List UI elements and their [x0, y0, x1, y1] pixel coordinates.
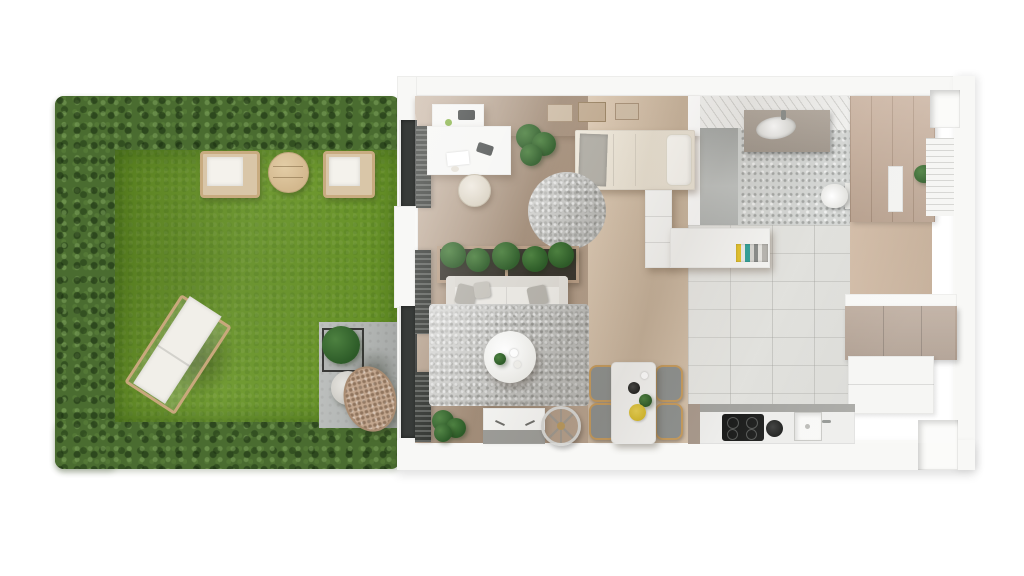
coffee-table: [484, 331, 536, 383]
table-seam: [273, 166, 303, 167]
burner: [746, 417, 758, 429]
round-rug: [528, 172, 606, 250]
bookshelf-halfwall: [670, 228, 770, 268]
table-seam: [273, 177, 303, 178]
bench-front: [483, 430, 545, 444]
counter-side-panel: [688, 404, 700, 444]
apple: [445, 119, 452, 126]
garden-armchair-right: [323, 151, 375, 198]
table-cup: [510, 349, 518, 357]
window-door-upper: [399, 120, 417, 208]
armchair-cushion: [329, 157, 360, 186]
plant-bottom-left: [434, 424, 452, 442]
kitchen-upper-cabinets: [845, 306, 957, 360]
wall-bottom: [397, 440, 975, 470]
kitchen-lower-cabinets: [848, 356, 934, 414]
books: [736, 244, 768, 262]
floor-hallway: [850, 222, 932, 294]
dining-table: [611, 362, 656, 444]
hedge-left: [55, 96, 117, 469]
kitchen-sink: [794, 412, 822, 441]
tiled-wall-strip: [926, 138, 954, 216]
sink-drain: [805, 424, 810, 429]
cabinet-seam: [883, 306, 884, 360]
wall-right: [953, 76, 975, 470]
picture-frame: [615, 103, 639, 120]
drawer-seam: [645, 216, 672, 217]
window-niche-top: [930, 90, 960, 128]
sink-faucet: [822, 420, 831, 423]
desk-chair: [458, 174, 491, 207]
induction-cooktop: [722, 414, 764, 441]
bench-bracket: [495, 420, 505, 426]
radio: [458, 110, 475, 120]
yellow-plate: [629, 404, 646, 421]
planter-plant: [440, 242, 466, 268]
shower: [700, 128, 740, 225]
shower-glass: [738, 128, 741, 225]
bed-pillow: [666, 134, 692, 186]
drawer-seam: [848, 384, 934, 385]
burner: [727, 429, 738, 440]
cup: [641, 372, 648, 379]
planter-plant: [466, 248, 490, 272]
bicycle-wheel: [541, 406, 581, 446]
burner: [727, 417, 739, 429]
table-cup: [514, 361, 521, 368]
bed-fold: [613, 134, 614, 186]
wheel-hub: [557, 422, 565, 430]
wardrobe-shelf: [888, 166, 903, 212]
garden-table: [268, 152, 309, 193]
armchair-cushion: [207, 157, 243, 186]
planter-plant: [492, 242, 520, 270]
dining-chair: [655, 365, 683, 402]
black-pot: [766, 420, 783, 437]
sofa-pillow: [473, 281, 491, 299]
kettle: [628, 382, 640, 394]
desk: [427, 126, 511, 175]
window-niche-bottom: [918, 420, 958, 470]
floor-plan-render: [0, 0, 1024, 576]
plant-top-center: [520, 144, 542, 166]
wall-top: [397, 76, 975, 96]
bed-fold: [635, 134, 636, 186]
tv-bench: [483, 408, 545, 444]
desk-lamp: [476, 142, 494, 156]
counter-back-edge: [688, 404, 855, 412]
dresser: [645, 190, 672, 268]
garden-armchair-left: [200, 151, 260, 198]
dining-chair: [655, 403, 683, 440]
vanity-faucet: [781, 110, 786, 120]
paper: [446, 151, 469, 166]
picture-frame: [578, 102, 606, 122]
drawer-seam: [645, 242, 672, 243]
planter-plant: [522, 246, 548, 272]
planter-plant: [548, 242, 574, 268]
toilet: [821, 184, 848, 208]
bench-bracket: [525, 420, 535, 426]
table-plant: [494, 353, 506, 365]
picture-frame: [547, 104, 573, 122]
desk-plate: [451, 166, 459, 172]
cabinet-seam: [921, 306, 922, 360]
burner: [746, 429, 757, 440]
